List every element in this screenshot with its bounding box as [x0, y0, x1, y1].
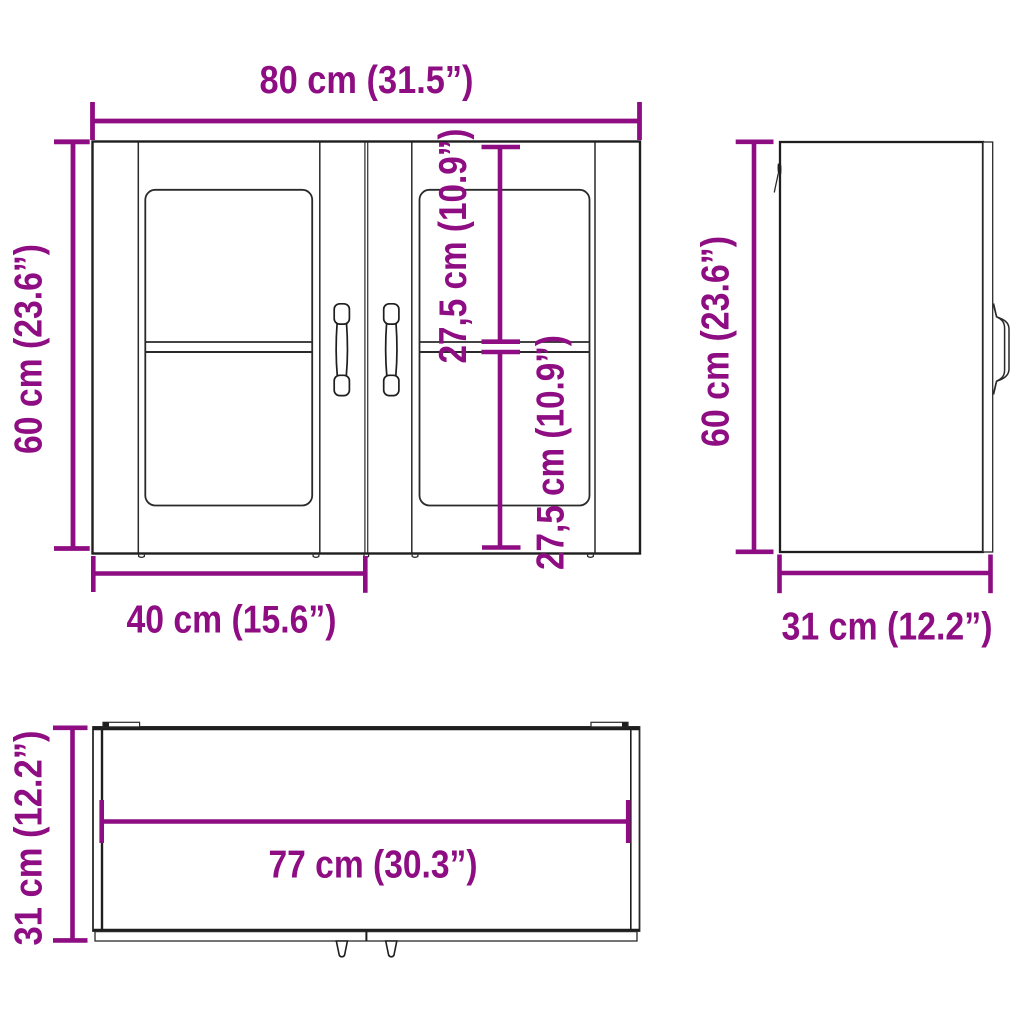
svg-text:60 cm (23.6”): 60 cm (23.6”)	[695, 236, 738, 447]
svg-text:77 cm (30.3”): 77 cm (30.3”)	[269, 843, 478, 886]
svg-text:80 cm (31.5”): 80 cm (31.5”)	[260, 59, 474, 102]
svg-text:40 cm (15.6”): 40 cm (15.6”)	[127, 598, 337, 641]
svg-text:27,5 cm (10.9”): 27,5 cm (10.9”)	[432, 129, 475, 364]
svg-text:31 cm (12.2”): 31 cm (12.2”)	[782, 606, 993, 649]
svg-text:60 cm (23.6”): 60 cm (23.6”)	[7, 244, 50, 454]
svg-text:27,5 cm (10.9”): 27,5 cm (10.9”)	[530, 335, 573, 570]
svg-text:31 cm (12.2”): 31 cm (12.2”)	[8, 731, 51, 946]
